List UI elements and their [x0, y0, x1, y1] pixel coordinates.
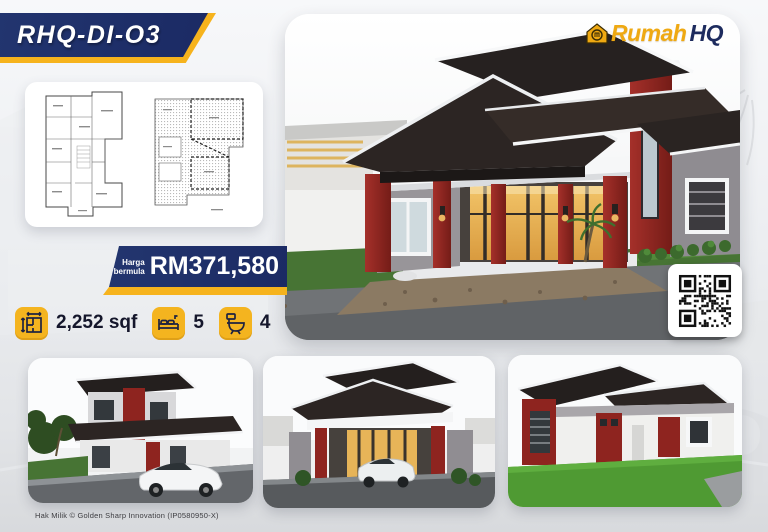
roof-plan-drawing [149, 91, 253, 218]
copyright-text: Hak Milik © Golden Sharp Innovation (IP0… [35, 511, 219, 520]
thumbnail-render-2 [263, 356, 495, 508]
thumbnail-render-3 [508, 355, 742, 507]
floor-area-icon [15, 307, 48, 340]
qr-card [668, 264, 742, 337]
price-label: Harga bermula [114, 258, 145, 276]
price-banner-body: Harga bermula RM371,580 [103, 246, 287, 287]
price-banner-accent [103, 287, 287, 295]
model-code: RHQ-DI-O3 [17, 21, 191, 50]
floor-plan-card [25, 82, 263, 227]
specs-row: 2,252 sqf 5 4 [15, 305, 270, 341]
model-banner-body: RHQ-DI-O3 [0, 13, 208, 57]
bed-icon [152, 307, 185, 340]
brand-name-primary: Rumah [611, 20, 686, 47]
floor-plan-drawing [35, 88, 139, 221]
flyer-canvas: RHQ-DI-O3 [0, 0, 768, 532]
bedrooms-value: 5 [193, 312, 204, 334]
brand-logo: Rumah HQ [586, 20, 723, 47]
thumbnail-render-1 [28, 358, 253, 503]
toilet-icon [219, 307, 252, 340]
price-amount: RM371,580 [150, 252, 279, 281]
floor-area-value: 2,252 sqf [56, 312, 137, 334]
model-banner: RHQ-DI-O3 [0, 13, 216, 63]
price-banner: Harga bermula RM371,580 [103, 246, 287, 295]
brand-name-secondary: HQ [689, 20, 723, 47]
qr-code [674, 270, 736, 332]
house-icon [586, 23, 608, 44]
bathrooms-value: 4 [260, 312, 271, 334]
